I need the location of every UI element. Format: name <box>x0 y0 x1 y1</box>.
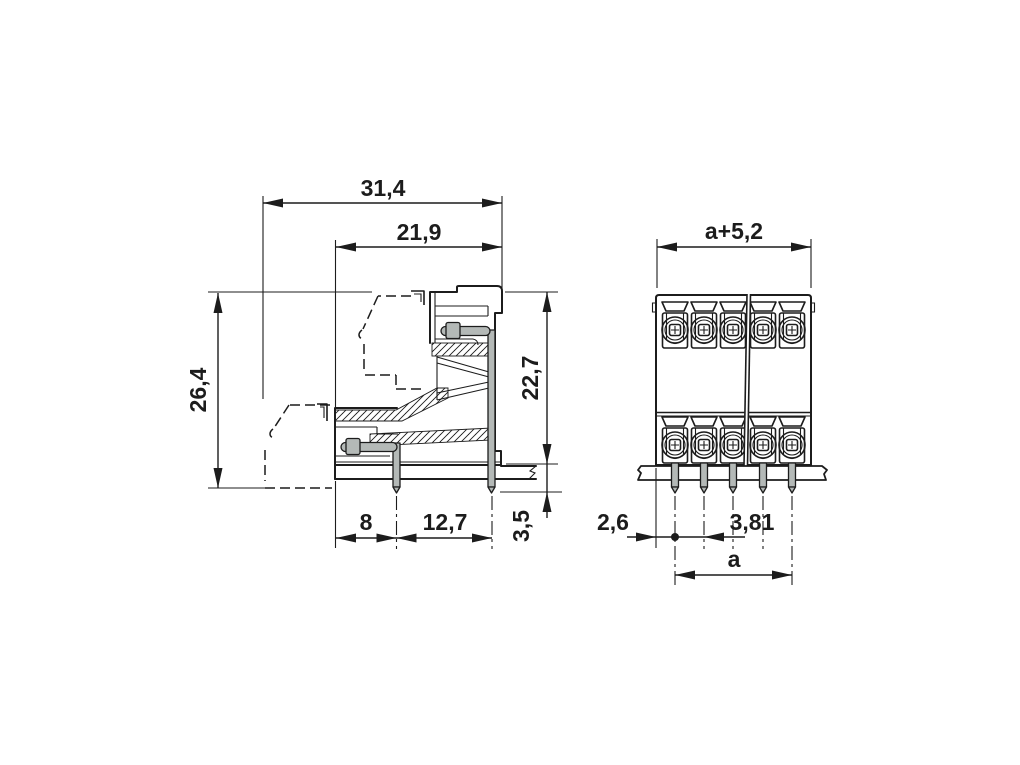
paper-background <box>0 0 1020 765</box>
dim-label: 21,9 <box>397 219 442 245</box>
dim-label: 3,5 <box>508 510 534 542</box>
dim-label: 8 <box>360 509 373 535</box>
dim-reference-dot <box>671 533 679 541</box>
dim-label: a+5,2 <box>705 218 763 244</box>
dim-label: 31,4 <box>361 175 406 201</box>
hatch-upper-band <box>432 343 490 356</box>
solder-pin <box>789 463 796 493</box>
dim-label: 3,81 <box>730 509 775 535</box>
solder-pin <box>672 463 679 493</box>
solder-pin <box>701 463 708 493</box>
solder-pin <box>730 463 737 493</box>
dim-label: 12,7 <box>423 509 468 535</box>
dim-label: 22,7 <box>517 356 543 401</box>
drawing-canvas: 31,4 21,9 26,4 22,7 3,5 <box>0 0 1020 765</box>
dim-label: a <box>728 546 741 572</box>
dim-label: 2,6 <box>597 509 629 535</box>
solder-pin <box>760 463 767 493</box>
technical-drawing: 31,4 21,9 26,4 22,7 3,5 <box>0 0 1020 765</box>
dim-label: 26,4 <box>185 367 211 412</box>
